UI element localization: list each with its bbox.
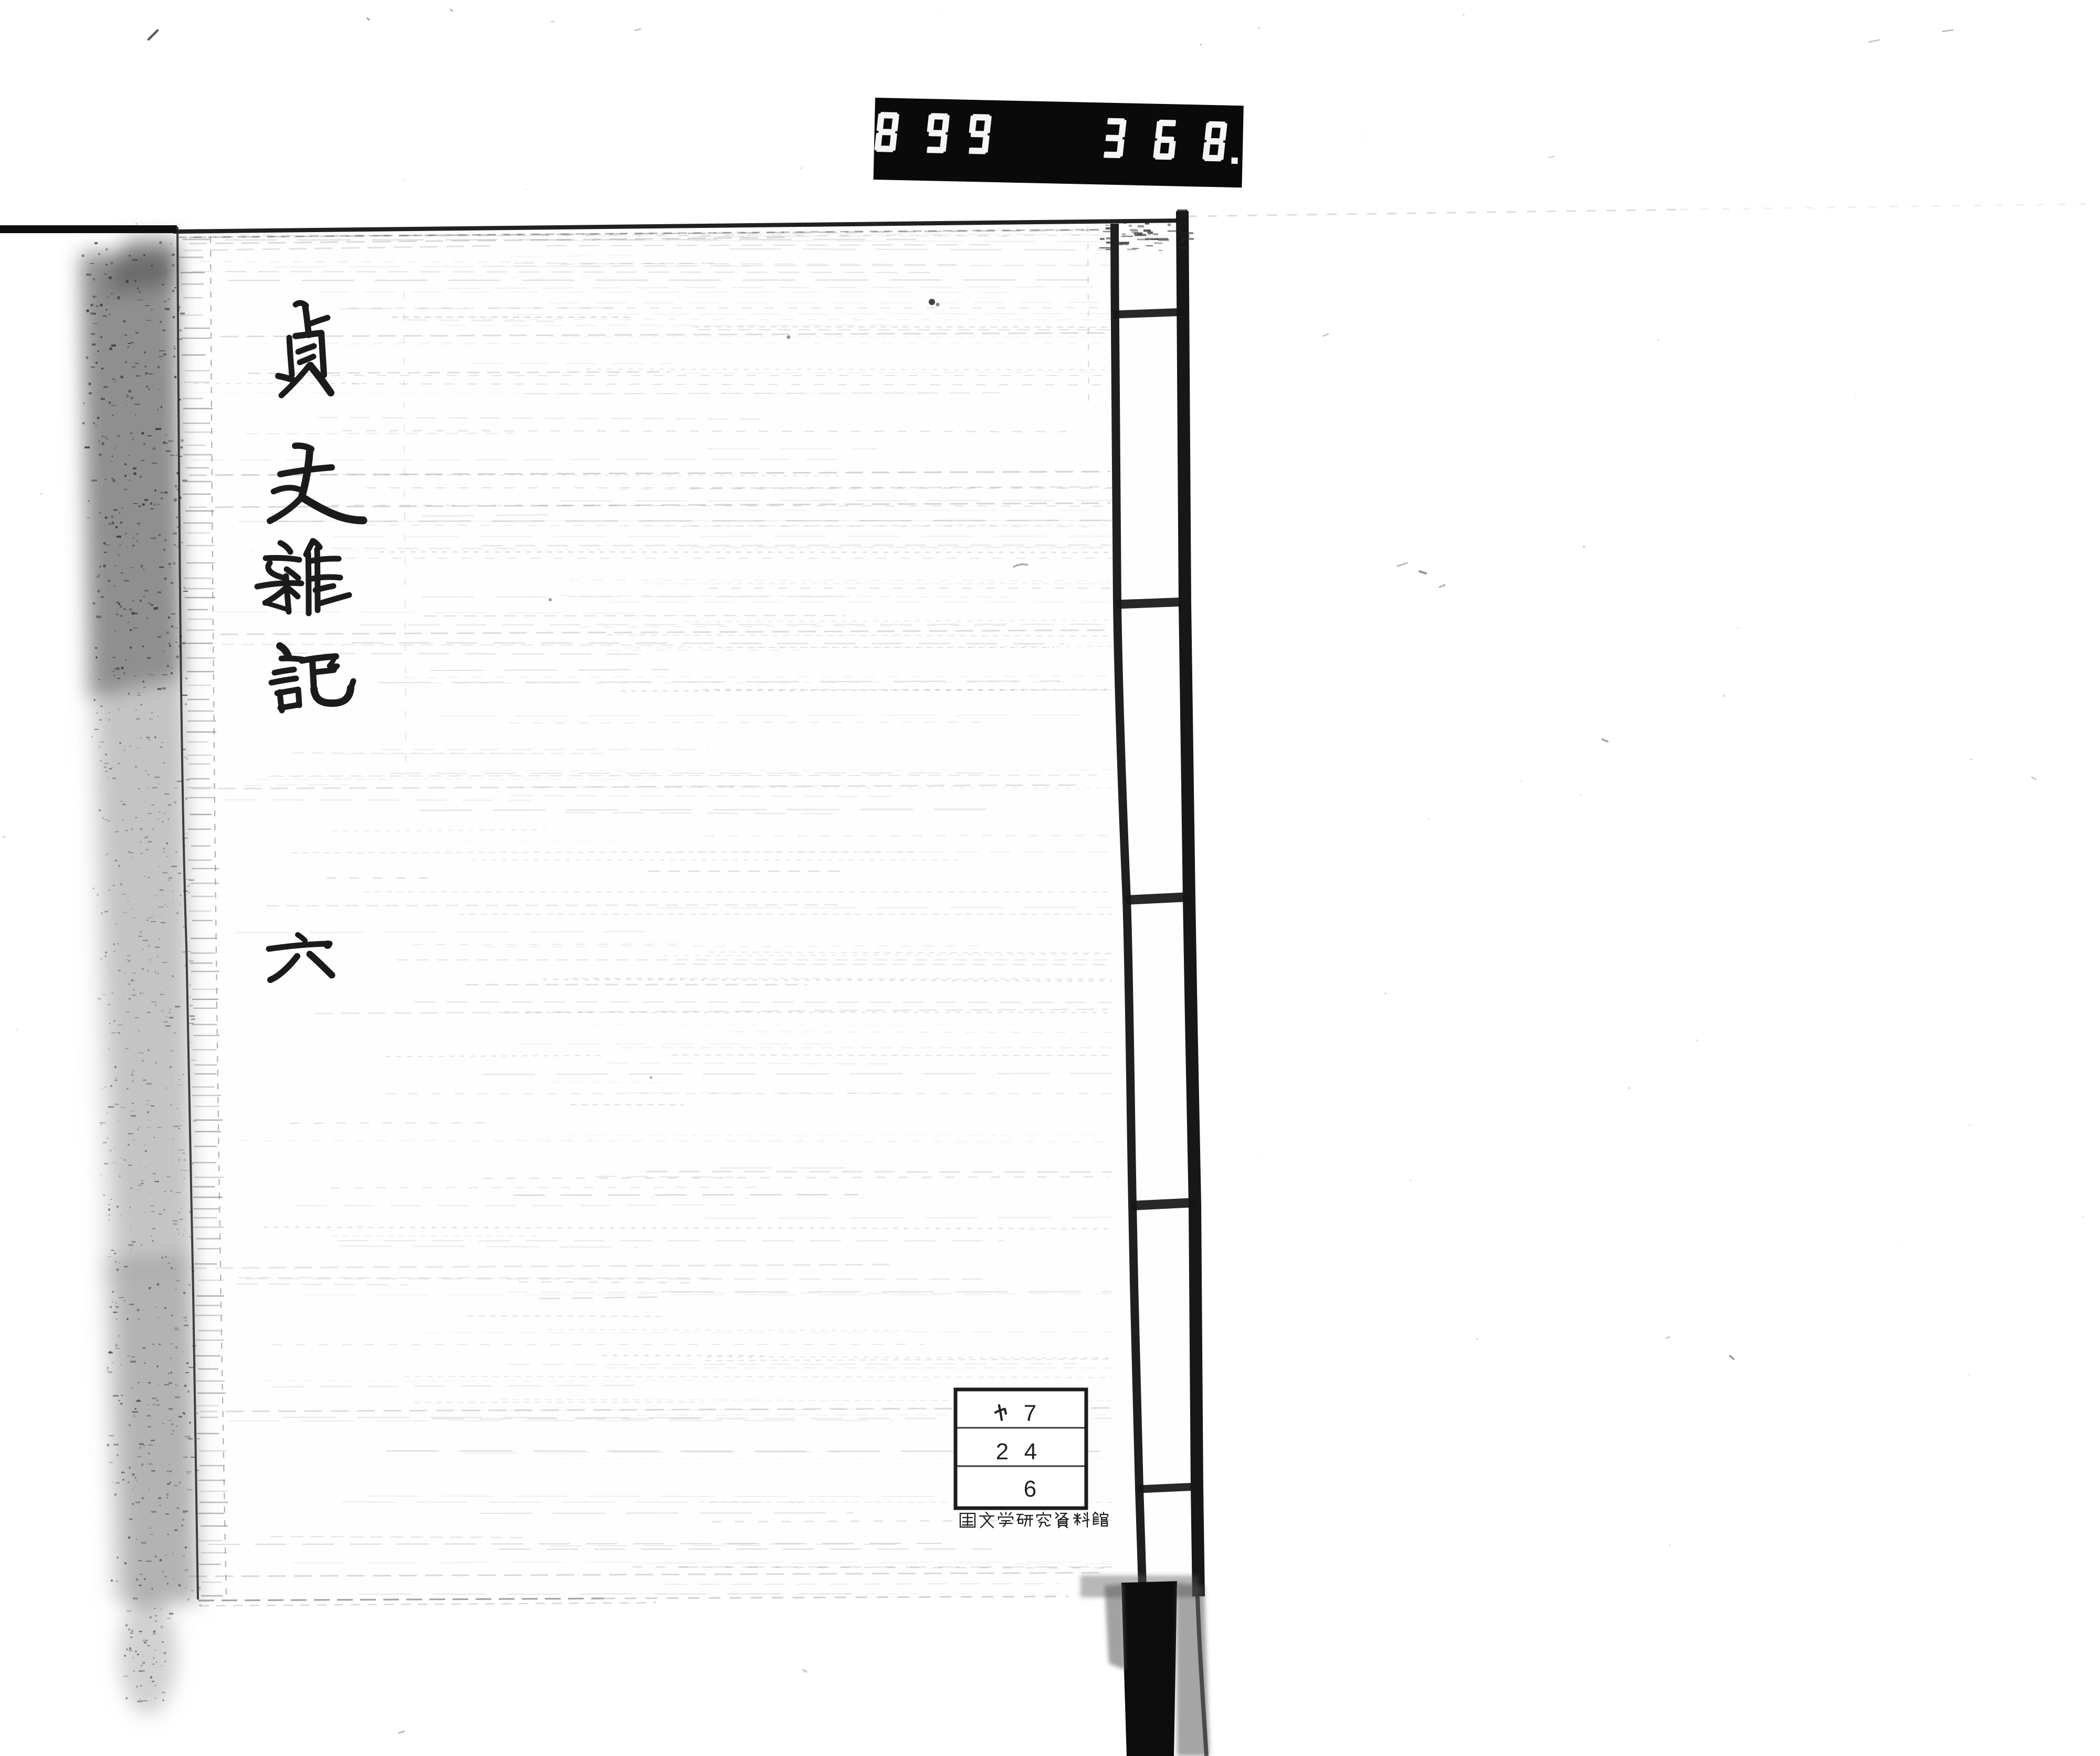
svg-text:2: 2	[996, 1439, 1009, 1465]
svg-text:7: 7	[1024, 1400, 1036, 1426]
svg-text:6: 6	[1024, 1476, 1036, 1502]
svg-text:4: 4	[1024, 1439, 1037, 1465]
